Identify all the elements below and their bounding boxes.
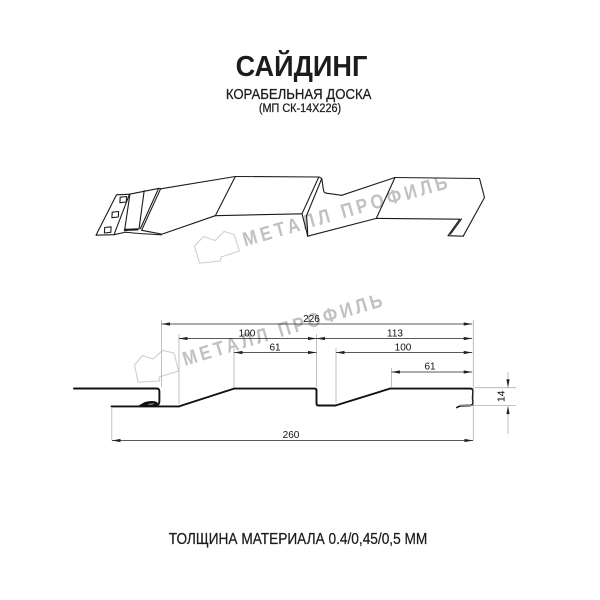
svg-text:МЕТАЛЛ ПРОФИЛЬ: МЕТАЛЛ ПРОФИЛЬ bbox=[180, 288, 388, 371]
svg-text:61: 61 bbox=[269, 343, 281, 354]
svg-text:260: 260 bbox=[283, 430, 300, 441]
svg-text:226: 226 bbox=[303, 314, 320, 325]
svg-text:113: 113 bbox=[387, 329, 403, 340]
svg-text:61: 61 bbox=[424, 362, 436, 373]
svg-text:МЕТАЛЛ ПРОФИЛЬ: МЕТАЛЛ ПРОФИЛЬ bbox=[240, 169, 453, 250]
svg-text:100: 100 bbox=[395, 343, 412, 354]
svg-text:14: 14 bbox=[496, 390, 508, 402]
svg-text:100: 100 bbox=[239, 329, 256, 340]
